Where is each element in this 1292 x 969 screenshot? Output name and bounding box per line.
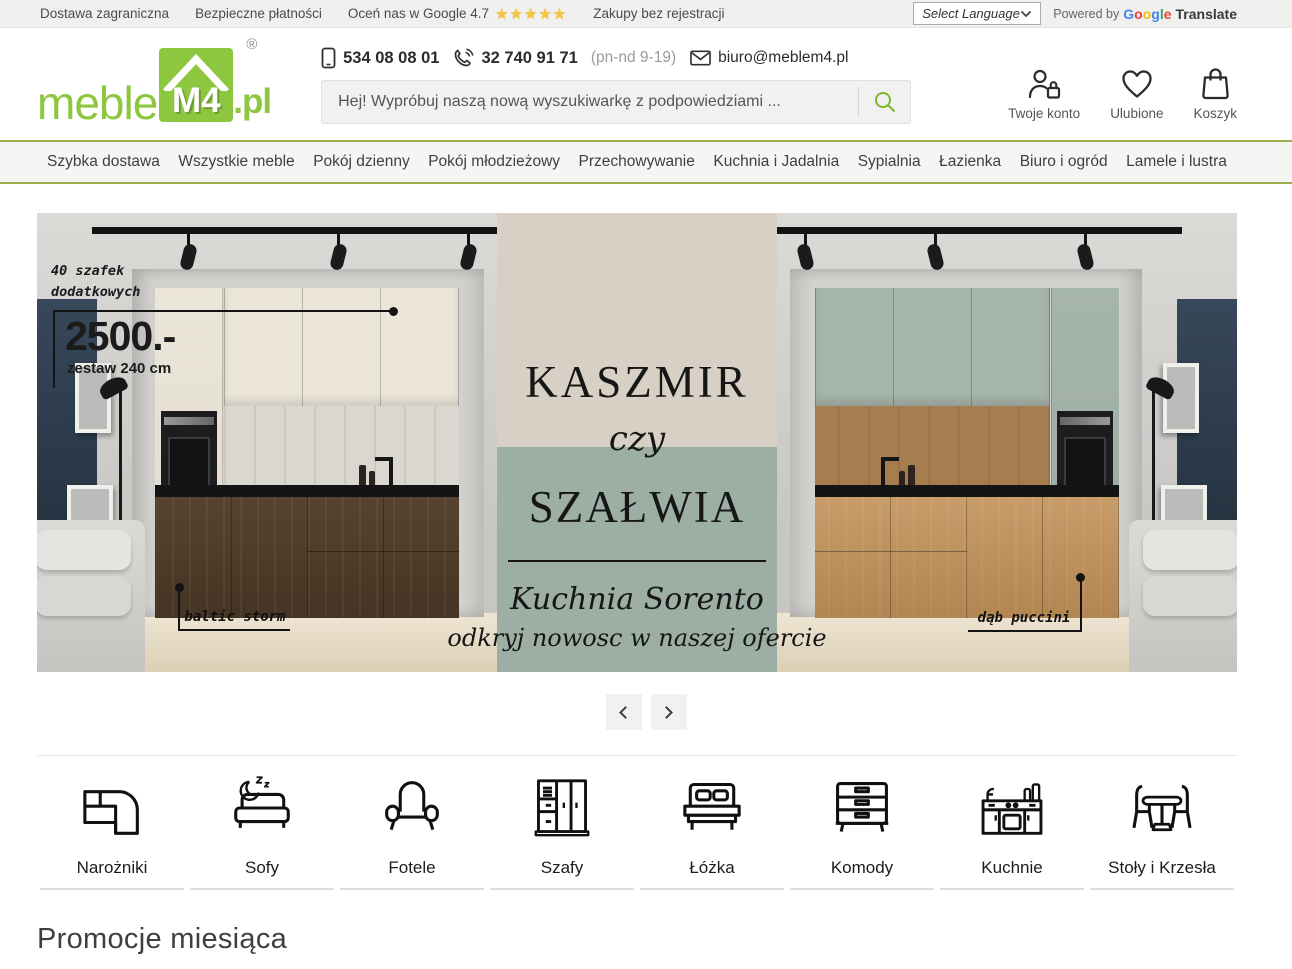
nav-item-biuro-i-ogrod[interactable]: Biuro i ogród (1020, 153, 1108, 171)
topbar: Dostawa zagraniczna Bezpieczne płatności… (0, 0, 1292, 28)
sofa-cushion (37, 530, 131, 570)
spotlight (934, 234, 937, 245)
hero-banner[interactable]: KASZMIR czy SZAŁWIA Kuchnia Sorento odkr… (37, 213, 1237, 672)
kitchen-icon (974, 770, 1050, 846)
phone-icon (453, 48, 474, 69)
heart-icon (1120, 68, 1154, 100)
spotlight (187, 234, 190, 245)
search-input[interactable] (322, 81, 858, 123)
topbar-link-no-registration[interactable]: Zakupy bez rejestracji (593, 6, 724, 21)
favorites-label: Ulubione (1110, 106, 1163, 121)
carousel-prev-button[interactable] (606, 694, 642, 730)
account-button[interactable]: Twoje konto (1008, 68, 1080, 121)
hero-title-czy: czy (609, 419, 665, 459)
registered-trademark: ® (246, 36, 257, 53)
nav-item-szybka-dostawa[interactable]: Szybka dostawa (47, 153, 160, 171)
backsplash (815, 406, 1050, 486)
backsplash (224, 406, 459, 486)
phone-hours: (pn-nd 9-19) (591, 49, 676, 67)
sofa (1129, 520, 1237, 672)
topbar-links: Dostawa zagraniczna Bezpieczne płatności… (40, 5, 725, 23)
category-szafy[interactable]: Szafy (490, 756, 634, 890)
category-label: Fotele (388, 858, 435, 878)
google-rating[interactable]: Oceń nas w Google 4.7 ★★★★★ (348, 5, 567, 23)
sofa-cushion (1143, 530, 1237, 570)
powered-by-label: Powered by (1053, 7, 1119, 21)
contact-row: 534 08 08 01 32 740 91 71 (pn-nd 9-19) b… (321, 47, 911, 69)
armchair-icon (374, 770, 450, 846)
sofa-cushion (1143, 576, 1237, 616)
topbar-link-foreign-delivery[interactable]: Dostawa zagraniczna (40, 6, 169, 21)
bottle (899, 471, 905, 485)
user-lock-icon (1026, 68, 1062, 100)
category-row: Narożniki Sofy Fotele (37, 755, 1237, 890)
google-logo: Google (1123, 6, 1171, 22)
price-pointer-line (53, 310, 395, 312)
nav-item-lamele-i-lustra[interactable]: Lamele i lustra (1126, 153, 1227, 171)
phone-number-mobile: 534 08 08 01 (343, 49, 439, 68)
faucet (389, 457, 393, 485)
chevron-right-icon (660, 706, 673, 719)
category-komody[interactable]: Komody (790, 756, 934, 890)
translate-label: Translate (1176, 6, 1237, 22)
nav-item-przechowywanie[interactable]: Przechowywanie (579, 153, 695, 171)
category-kuchnie[interactable]: Kuchnie (940, 756, 1084, 890)
spotlight (337, 234, 340, 245)
upper-cabinets (815, 288, 1050, 406)
language-select-label: Select Language (922, 6, 1020, 21)
main-nav: Szybka dostawa Wszystkie meble Pokój dzi… (0, 140, 1292, 184)
hero-title-kaszmir: KASZMIR (525, 356, 749, 408)
email-link[interactable]: biuro@meblem4.pl (690, 49, 848, 67)
category-label: Komody (831, 858, 893, 878)
header-middle: 534 08 08 01 32 740 91 71 (pn-nd 9-19) b… (321, 47, 911, 124)
chevron-down-icon (1020, 10, 1032, 18)
hero-title-szalwia: SZAŁWIA (529, 481, 745, 533)
landline-phone-link[interactable]: 32 740 91 71 (pn-nd 9-19) (453, 48, 676, 69)
favorites-button[interactable]: Ulubione (1110, 68, 1163, 121)
google-translate-attribution[interactable]: Powered by Google Translate (1053, 6, 1237, 22)
cart-label: Koszyk (1193, 106, 1237, 121)
logo-text-pl: .pl (233, 82, 271, 122)
hero-cabinets-badge: 40 szafek dodatkowych (51, 261, 140, 303)
hero-title-underline (508, 560, 766, 562)
material-label-baltic-storm: baltic storm (178, 587, 290, 631)
category-fotele[interactable]: Fotele (340, 756, 484, 890)
countertop (815, 485, 1119, 497)
spotlight (804, 234, 807, 245)
carousel-navigation (0, 694, 1292, 730)
mobile-phone-icon (321, 47, 336, 69)
phone-number-landline: 32 740 91 71 (481, 49, 577, 68)
sofa-sleep-icon (224, 770, 300, 846)
table-chairs-icon (1124, 770, 1200, 846)
star-rating-icons: ★★★★★ (495, 5, 567, 23)
carousel-next-button[interactable] (651, 694, 687, 730)
sofa-cushion (37, 576, 131, 616)
category-sofy[interactable]: Sofy (190, 756, 334, 890)
spotlight (1084, 234, 1087, 245)
chevron-left-icon (619, 706, 632, 719)
track-light (777, 227, 1182, 234)
category-label: Narożniki (77, 858, 148, 878)
bed-icon (674, 770, 750, 846)
category-stoly-i-krzesla[interactable]: Stoły i Krzesła (1090, 756, 1234, 890)
countertop (155, 485, 459, 497)
logo-house-icon: M4 ® (159, 48, 233, 122)
hero-price-callout: 2500.- zestaw 240 cm (53, 310, 395, 377)
language-select[interactable]: Select Language (913, 2, 1041, 25)
nav-item-wszystkie-meble[interactable]: Wszystkie meble (178, 153, 294, 171)
logo-text-meble: meble (37, 85, 157, 122)
faucet (881, 457, 885, 485)
nav-item-pokoj-dzienny[interactable]: Pokój dzienny (313, 153, 410, 171)
beige-panel (497, 213, 777, 447)
material-label-dab-puccini: dąb puccini (968, 577, 1082, 632)
search-bar (321, 80, 911, 124)
track-light (92, 227, 497, 234)
account-label: Twoje konto (1008, 106, 1080, 121)
search-button[interactable] (858, 87, 910, 117)
category-narozniki[interactable]: Narożniki (40, 756, 184, 890)
nav-item-lazienka[interactable]: Łazienka (939, 153, 1001, 171)
mobile-phone-link[interactable]: 534 08 08 01 (321, 47, 439, 69)
category-label: Łóżka (689, 858, 734, 878)
header-account-area: Twoje konto Ulubione Koszyk (1008, 68, 1237, 121)
google-rating-label: Oceń nas w Google 4.7 (348, 6, 489, 21)
wardrobe-icon (524, 770, 600, 846)
nav-item-kuchnia-i-jadalnia[interactable]: Kuchnia i Jadalnia (713, 153, 839, 171)
spotlight (467, 234, 470, 245)
logo-text-m4: M4 (159, 81, 233, 121)
bottle (359, 465, 366, 485)
sofa (37, 520, 145, 672)
hero-center-panel: KASZMIR czy SZAŁWIA Kuchnia Sorento odkr… (497, 213, 777, 672)
hero-script-line1: Kuchnia Sorento (510, 582, 764, 617)
cart-button[interactable]: Koszyk (1193, 68, 1237, 121)
category-label: Szafy (541, 858, 584, 878)
category-label: Sofy (245, 858, 279, 878)
header: meble M4 ® .pl 534 08 08 01 32 740 91 71… (0, 28, 1292, 140)
category-lozka[interactable]: Łóżka (640, 756, 784, 890)
category-label: Kuchnie (981, 858, 1042, 878)
site-logo[interactable]: meble M4 ® .pl (37, 48, 271, 122)
search-icon (873, 90, 897, 114)
corner-sofa-icon (74, 770, 150, 846)
bottle (369, 471, 375, 485)
bottle (908, 465, 915, 485)
nav-item-pokoj-mlodziezowy[interactable]: Pokój młodzieżowy (428, 153, 560, 171)
hero-script-line2: odkryj nowosc w naszej ofercie (447, 624, 826, 652)
promotions-heading: Promocje miesiąca (37, 923, 1292, 956)
category-label: Stoły i Krzesła (1108, 858, 1216, 878)
envelope-icon (690, 50, 711, 66)
topbar-translate-area: Select Language Powered by Google Transl… (913, 2, 1237, 25)
hero-price-subtitle: zestaw 240 cm (67, 360, 395, 377)
email-address: biuro@meblem4.pl (718, 49, 848, 67)
dresser-icon (824, 770, 900, 846)
shopping-bag-icon (1200, 68, 1231, 100)
nav-item-sypialnia[interactable]: Sypialnia (858, 153, 921, 171)
topbar-link-secure-payments[interactable]: Bezpieczne płatności (195, 6, 322, 21)
hero-price: 2500.- (65, 316, 395, 357)
